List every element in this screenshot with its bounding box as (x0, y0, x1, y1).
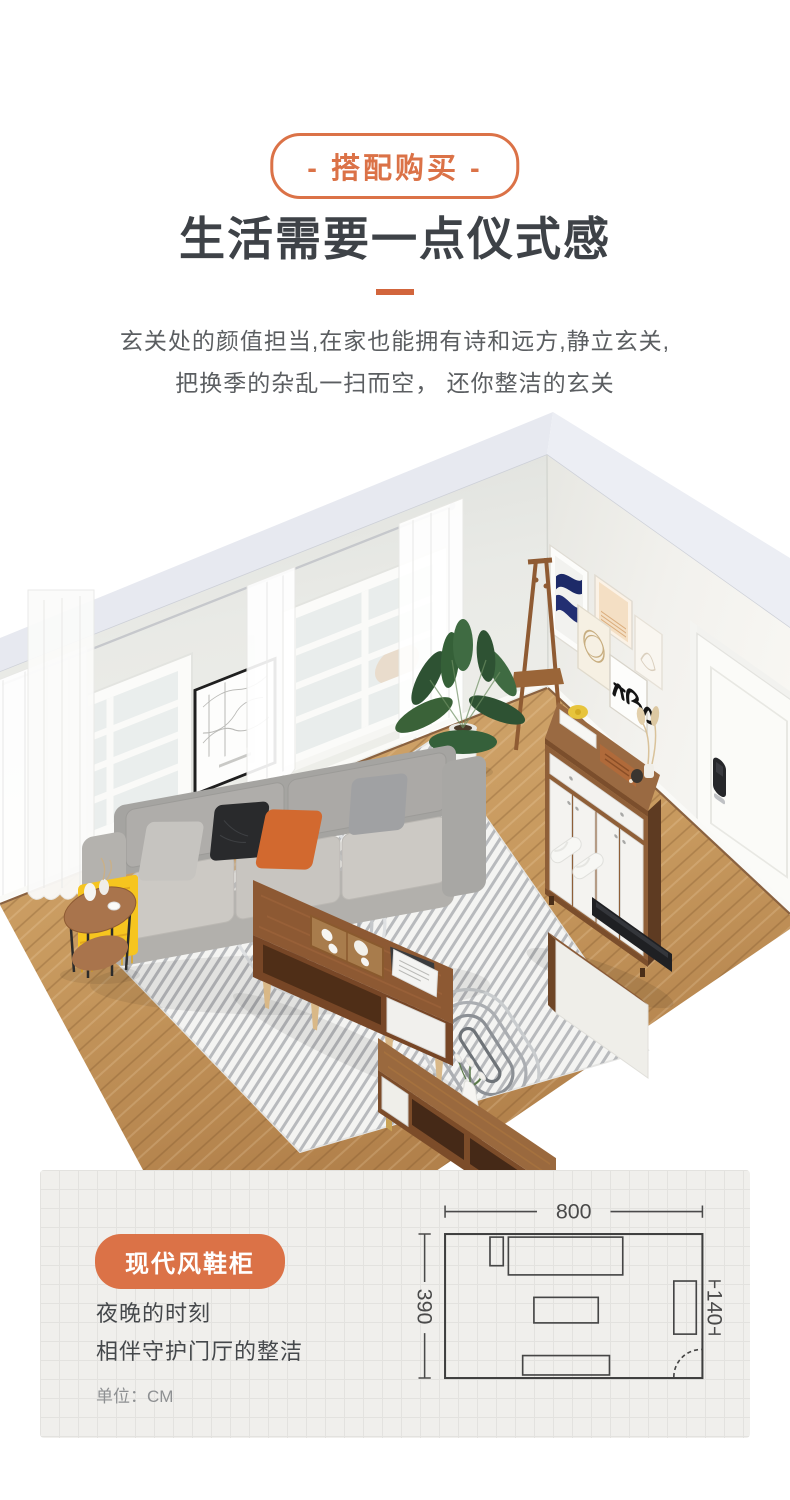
floor-plan-drawing: 800 390 140 (390, 1184, 735, 1424)
room-render-image (0, 410, 790, 1190)
plan-shoe-cabinet (674, 1281, 696, 1334)
page-title: 生活需要一点仪式感 (0, 203, 790, 269)
product-name-badge: 现代风鞋柜 (95, 1234, 285, 1289)
plan-room-outline (445, 1234, 702, 1378)
plan-door-swing (674, 1349, 702, 1377)
plan-dim-depth: 390 (412, 1289, 436, 1325)
product-spec-panel: 现代风鞋柜 夜晚的时刻 相伴守护门厅的整洁 单位：CM 800 390 140 (40, 1170, 750, 1438)
product-caption-line-2: 相伴守护门厅的整洁 (96, 1334, 303, 1366)
unit-label: 单位：CM (96, 1382, 173, 1407)
plan-tv-bench (523, 1356, 610, 1375)
product-caption-line-1: 夜晚的时刻 (96, 1296, 211, 1328)
match-purchase-badge: - 搭配购买 - (270, 133, 519, 199)
plan-side-table (490, 1237, 503, 1266)
subtitle-line-2: 把换季的杂乱一扫而空， 还你整洁的玄关 (0, 364, 790, 398)
plan-dim-cabinet: 140 (703, 1290, 727, 1326)
title-divider (376, 289, 414, 295)
plan-dim-width: 800 (556, 1200, 592, 1224)
plan-coffee-table (534, 1297, 598, 1323)
subtitle-line-1: 玄关处的颜值担当,在家也能拥有诗和远方,静立玄关, (0, 322, 790, 356)
plan-sofa (508, 1237, 622, 1275)
